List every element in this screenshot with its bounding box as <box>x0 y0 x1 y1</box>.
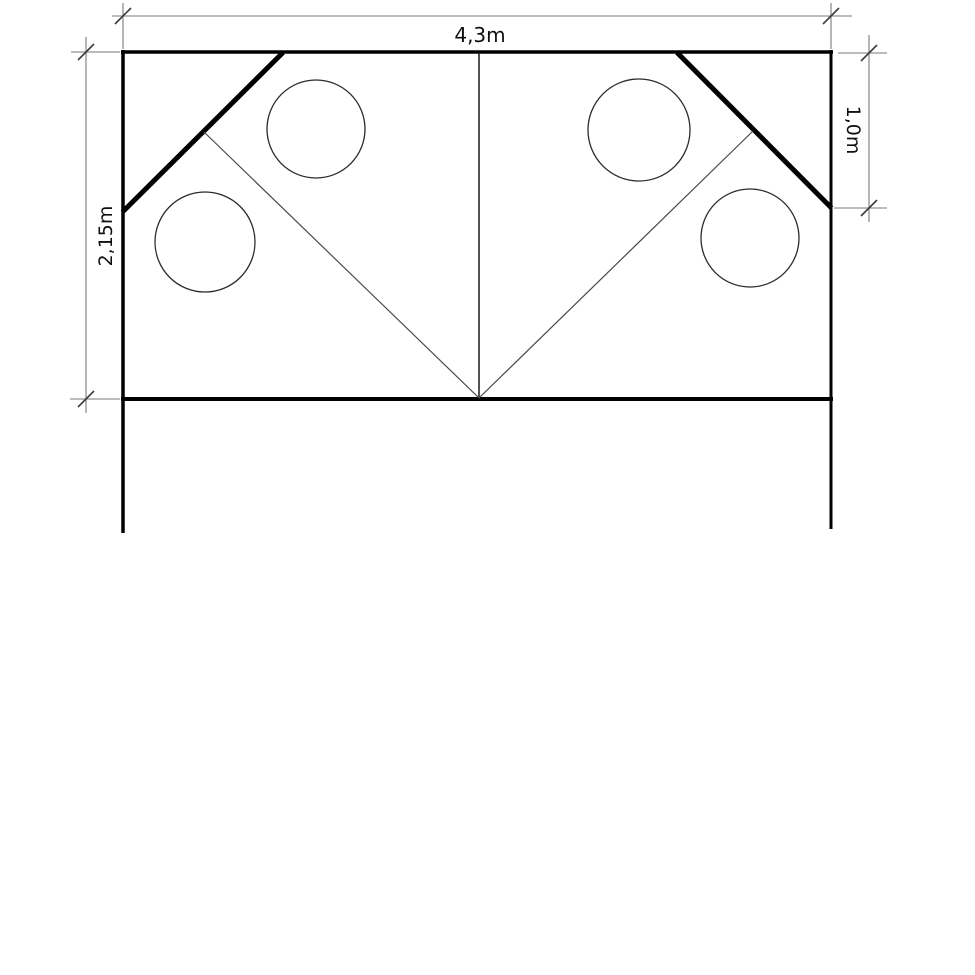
top-dimension-label: 4,3m <box>454 23 505 47</box>
right-corner-chamfer-line <box>677 53 832 209</box>
right-lower-circle <box>701 189 799 287</box>
frame-outline <box>121 50 833 533</box>
right-diagonal-brace-line <box>479 131 753 398</box>
left-dimension: 2,15m <box>70 37 120 413</box>
top-dimension: 4,3m <box>112 3 852 49</box>
left-corner-chamfer-line <box>123 53 284 213</box>
right-dimension-label: 1,0m <box>842 106 864 155</box>
right-upper-circle <box>588 79 690 181</box>
drawing-page: 4,3m 2,15m 1,0m <box>0 0 975 975</box>
left-diagonal-brace-line <box>204 132 479 398</box>
technical-drawing-canvas: 4,3m 2,15m 1,0m <box>0 0 975 975</box>
right-dimension: 1,0m <box>834 35 887 222</box>
left-upper-circle <box>267 80 365 178</box>
left-lower-circle <box>155 192 255 292</box>
circle-openings <box>155 79 799 292</box>
left-dimension-label: 2,15m <box>95 206 117 267</box>
